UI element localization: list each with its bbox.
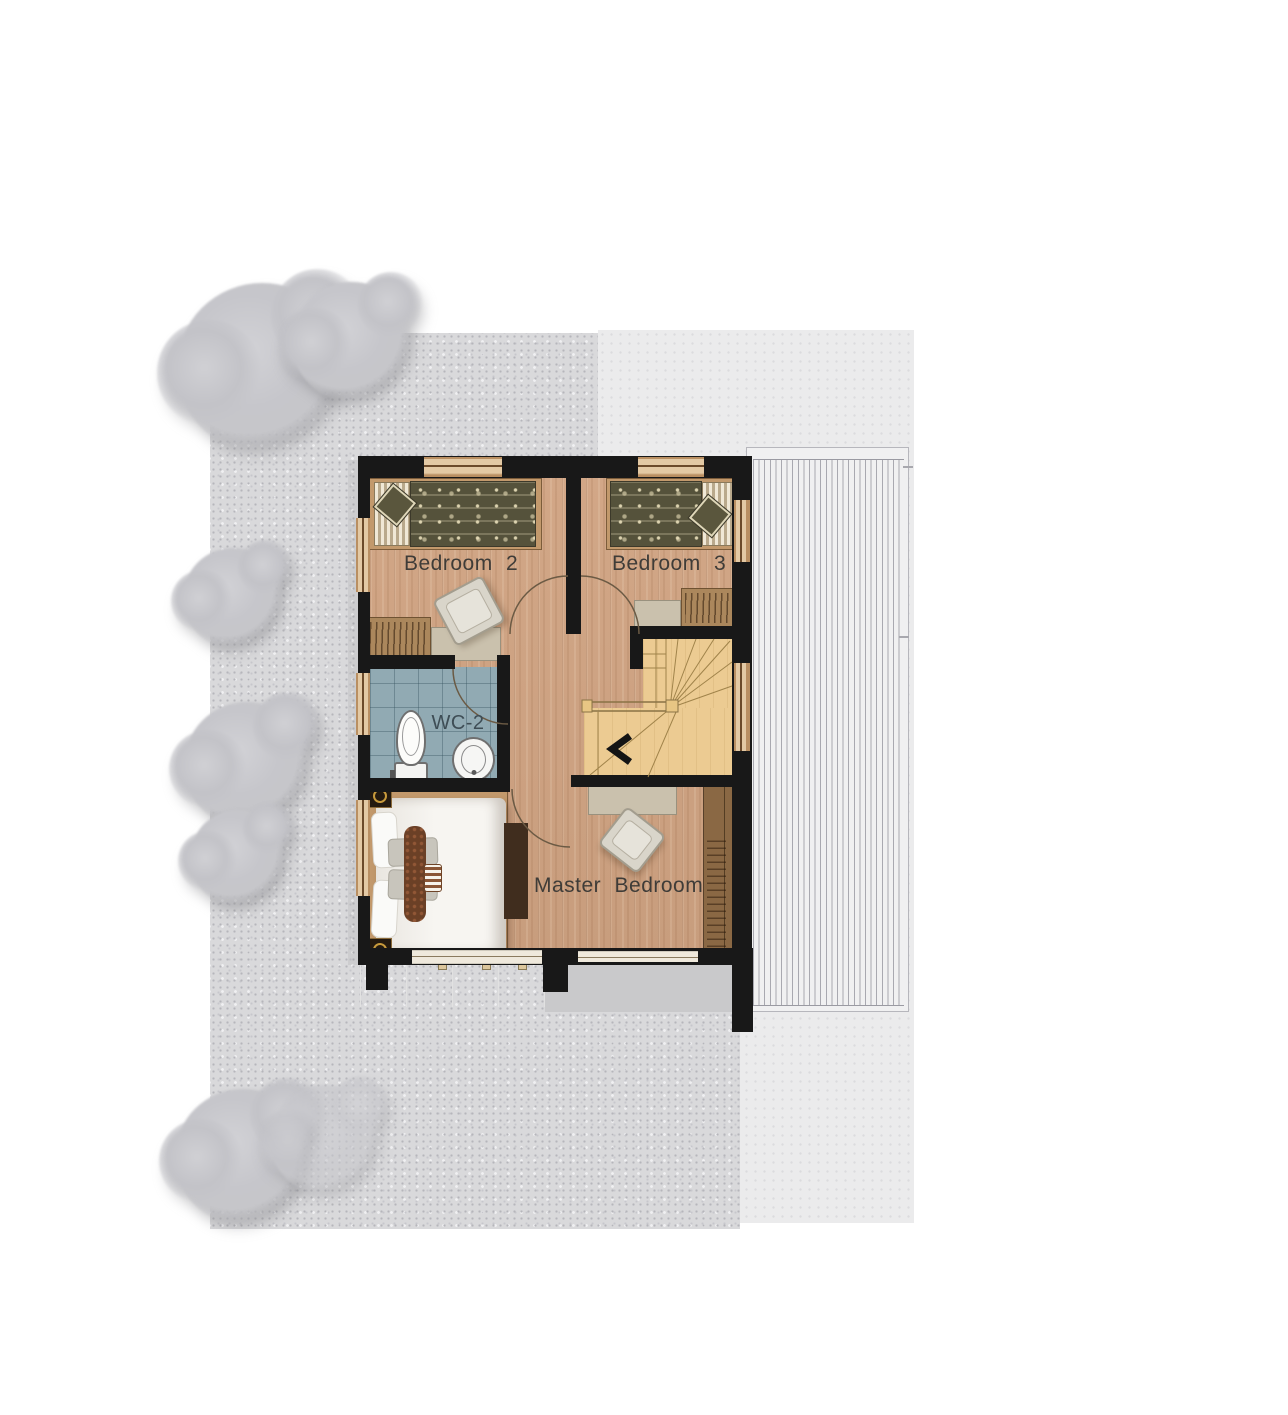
room-label-master-bedroom: Master Bedroom xyxy=(534,874,684,898)
room-label-wc2: WC-2 xyxy=(428,712,488,735)
wall-bathroom-top xyxy=(358,655,455,669)
window-stairs-right xyxy=(734,663,750,751)
floor-plan-canvas: Bedroom 2 Bedroom 3 WC-2 Master Bedroom xyxy=(0,0,1288,1415)
window-master-bottom xyxy=(412,950,542,964)
tree-icon xyxy=(184,702,310,828)
sink-icon xyxy=(452,737,495,782)
window-hall-bottom xyxy=(578,951,698,962)
bedroom2-duvet xyxy=(410,481,536,547)
room-label-bedroom3: Bedroom 3 xyxy=(612,552,722,576)
master-foot-bench xyxy=(504,823,528,919)
master-throw-pillows xyxy=(404,826,426,922)
wall-bathroom-bottom xyxy=(358,778,510,792)
balcony-post xyxy=(366,965,388,990)
window-bathroom-left xyxy=(356,673,370,735)
lower-roof-deck xyxy=(746,447,909,1012)
window-master-left xyxy=(356,800,370,896)
tree-icon xyxy=(292,282,412,402)
wall-bathroom-right xyxy=(497,655,510,792)
roof-sheeting-stripes xyxy=(753,459,904,1006)
corner-post xyxy=(732,948,753,1032)
dimension-tick xyxy=(903,466,913,468)
dimension-tick xyxy=(899,636,909,638)
window-bedroom2-top xyxy=(424,457,502,477)
wall-bedroom3-bottom xyxy=(630,626,732,639)
tree-icon xyxy=(183,548,283,648)
toilet-icon xyxy=(396,710,426,766)
window-bedroom3-right xyxy=(734,500,750,562)
tree-icon xyxy=(190,810,286,906)
window-bedroom3-top xyxy=(638,457,704,477)
balcony-post xyxy=(543,963,568,992)
wall-stairwell xyxy=(630,639,643,669)
master-striped-cushion xyxy=(424,864,442,892)
wall-bedroom-divider xyxy=(566,478,581,634)
staircase-upper-flight xyxy=(643,639,732,708)
porch-roof-slab xyxy=(545,962,746,1012)
staircase-lower-flight xyxy=(584,708,732,777)
room-label-bedroom2: Bedroom 2 xyxy=(404,552,514,576)
tree-icon xyxy=(270,1085,380,1195)
window-bedroom2-left xyxy=(356,518,370,592)
bedroom3-duvet xyxy=(610,481,702,547)
wall-master-top xyxy=(571,775,732,787)
